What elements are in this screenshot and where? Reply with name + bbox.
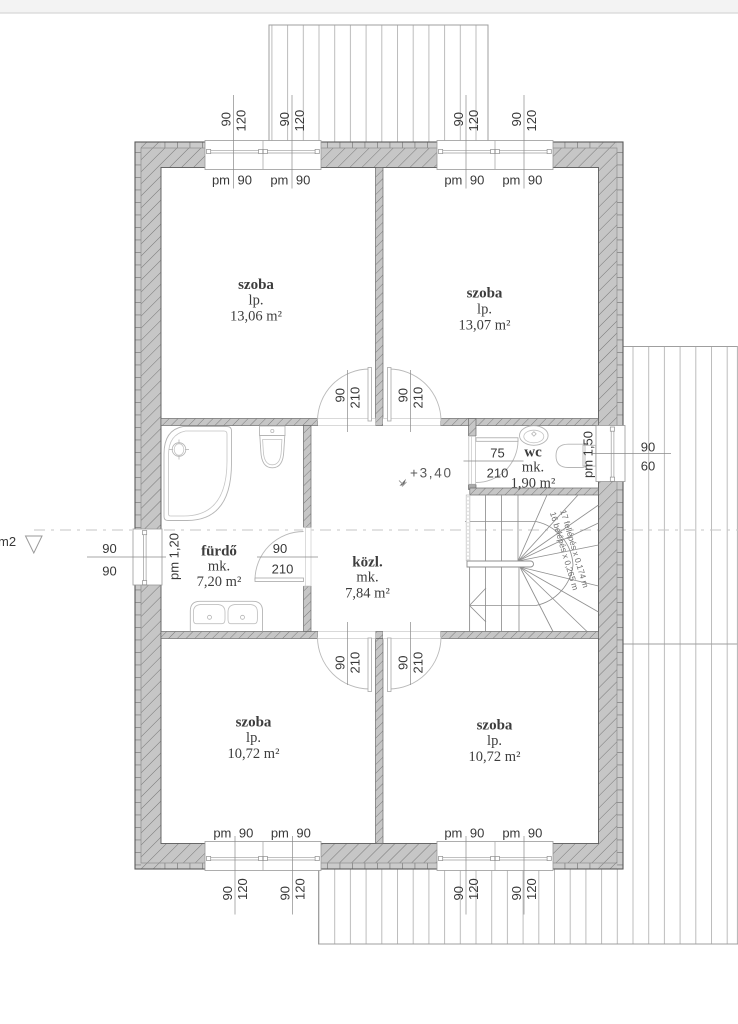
svg-text:90: 90 <box>395 656 410 670</box>
svg-text:pm: pm <box>212 173 230 188</box>
svg-text:90: 90 <box>451 112 466 126</box>
svg-text:90: 90 <box>219 112 234 126</box>
svg-text:10,72 m²: 10,72 m² <box>228 746 281 762</box>
svg-text:120: 120 <box>524 878 539 900</box>
svg-text:mk.: mk. <box>522 460 544 476</box>
svg-text:13,06 m²: 13,06 m² <box>230 309 283 325</box>
svg-text:120: 120 <box>235 878 250 900</box>
svg-text:fürdő: fürdő <box>201 544 237 560</box>
svg-text:+3,40: +3,40 <box>410 466 453 481</box>
svg-text:90: 90 <box>220 886 235 900</box>
svg-text:90: 90 <box>470 826 484 841</box>
svg-text:60: 60 <box>641 459 655 474</box>
svg-text:90: 90 <box>102 541 116 556</box>
svg-text:m2: m2 <box>0 534 16 549</box>
svg-text:szoba: szoba <box>236 715 272 731</box>
svg-text:7,84 m²: 7,84 m² <box>345 586 390 602</box>
svg-text:90: 90 <box>395 388 410 402</box>
svg-text:210: 210 <box>348 387 363 409</box>
svg-text:pm: pm <box>271 826 289 841</box>
svg-text:90: 90 <box>641 440 655 455</box>
svg-text:lp.: lp. <box>246 730 261 746</box>
svg-text:szoba: szoba <box>477 718 513 734</box>
svg-text:mk.: mk. <box>208 559 230 575</box>
svg-text:pm: pm <box>444 826 462 841</box>
svg-text:pm: pm <box>213 826 231 841</box>
svg-text:90: 90 <box>451 886 466 900</box>
svg-text:1,90 m²: 1,90 m² <box>511 476 556 492</box>
svg-text:90: 90 <box>296 173 310 188</box>
svg-text:lp.: lp. <box>477 302 492 318</box>
svg-text:120: 120 <box>466 878 481 900</box>
svg-text:120: 120 <box>292 110 307 132</box>
svg-text:90: 90 <box>333 388 348 402</box>
svg-text:szoba: szoba <box>238 277 274 293</box>
svg-text:90: 90 <box>509 112 524 126</box>
svg-text:13,07 m²: 13,07 m² <box>459 318 512 334</box>
svg-text:210: 210 <box>348 652 363 674</box>
svg-text:pm 1,20: pm 1,20 <box>167 533 182 580</box>
svg-text:90: 90 <box>273 541 287 556</box>
svg-text:mk.: mk. <box>356 570 378 586</box>
svg-text:7,20 m²: 7,20 m² <box>197 574 242 590</box>
svg-text:szoba: szoba <box>467 286 503 302</box>
svg-text:10,72 m²: 10,72 m² <box>469 749 522 765</box>
svg-text:120: 120 <box>293 878 308 900</box>
svg-text:pm 1,50: pm 1,50 <box>581 431 596 478</box>
svg-text:210: 210 <box>487 466 509 481</box>
svg-text:210: 210 <box>410 652 425 674</box>
svg-text:90: 90 <box>528 826 542 841</box>
svg-text:90: 90 <box>102 564 116 579</box>
svg-text:pm: pm <box>444 173 462 188</box>
svg-text:lp.: lp. <box>487 733 502 749</box>
svg-text:wc: wc <box>524 445 542 461</box>
svg-text:90: 90 <box>278 886 293 900</box>
svg-text:120: 120 <box>234 110 249 132</box>
svg-text:90: 90 <box>528 173 542 188</box>
svg-text:90: 90 <box>277 112 292 126</box>
svg-text:pm: pm <box>502 173 520 188</box>
svg-text:120: 120 <box>524 110 539 132</box>
svg-text:90: 90 <box>239 826 253 841</box>
svg-text:210: 210 <box>410 387 425 409</box>
svg-text:75: 75 <box>490 446 504 461</box>
svg-text:120: 120 <box>466 110 481 132</box>
svg-text:90: 90 <box>470 173 484 188</box>
svg-text:pm: pm <box>270 173 288 188</box>
svg-text:lp.: lp. <box>249 293 264 309</box>
svg-text:pm: pm <box>502 826 520 841</box>
svg-text:90: 90 <box>509 886 524 900</box>
svg-text:közl.: közl. <box>352 555 383 571</box>
svg-text:210: 210 <box>272 562 294 577</box>
svg-text:90: 90 <box>238 173 252 188</box>
svg-text:90: 90 <box>333 656 348 670</box>
svg-text:90: 90 <box>296 826 310 841</box>
